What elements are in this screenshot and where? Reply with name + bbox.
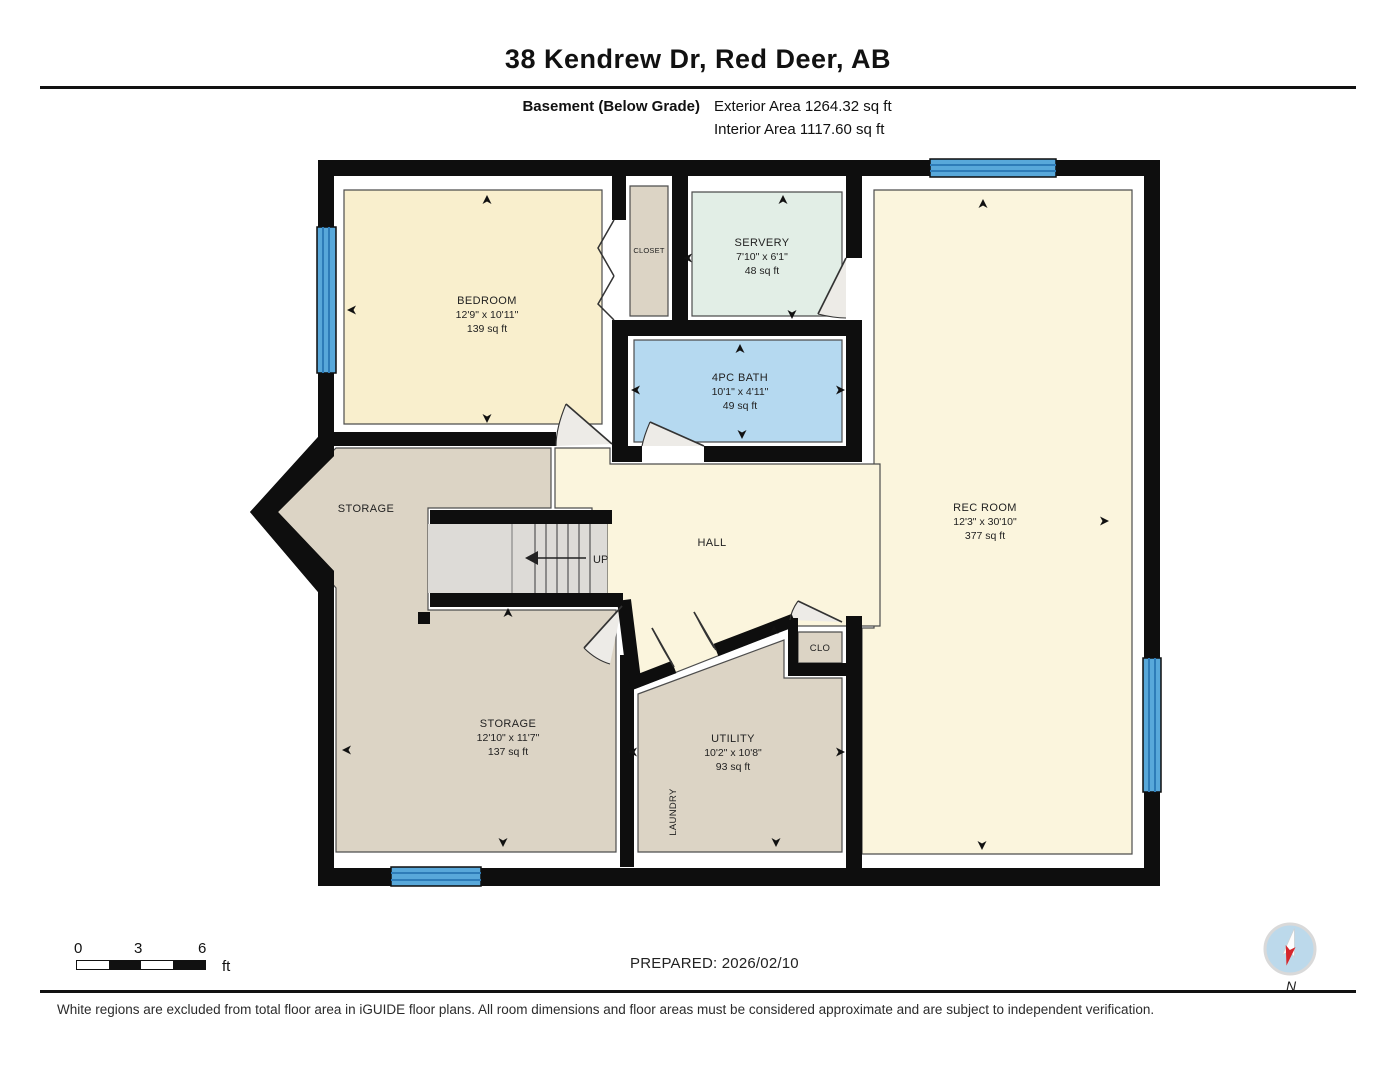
window-bottom [391, 867, 481, 886]
utility-dims: 10'2" x 10'8" [704, 747, 762, 759]
floor-plan-svg: BEDROOM 12'9" x 10'11" 139 sq ft CLOSET … [0, 0, 1396, 1080]
disclaimer-text: White regions are excluded from total fl… [57, 1002, 1154, 1017]
scale-0: 0 [74, 940, 82, 957]
servery-area: 48 sq ft [745, 265, 780, 277]
bath-dims: 10'1" x 4'11" [712, 386, 769, 398]
scale-6: 6 [198, 940, 206, 957]
footer-rule [40, 990, 1356, 993]
scale-bar: 0 3 6 ft [76, 940, 296, 970]
compass [1265, 924, 1315, 974]
window-top [930, 159, 1056, 177]
storage-lower-area: 137 sq ft [488, 746, 528, 758]
storage-lower-dims: 12'10" x 11'7" [477, 732, 540, 744]
scale-numbers: 0 3 6 [76, 940, 296, 958]
prepared-date: PREPARED: 2026/02/10 [630, 955, 799, 972]
scale-3: 3 [134, 940, 142, 957]
closet-label: CLOSET [633, 246, 664, 255]
scale-track [76, 960, 206, 970]
utility-label: UTILITY [711, 733, 755, 745]
laundry-label: LAUNDRY [668, 788, 679, 836]
bath-area: 49 sq ft [723, 400, 758, 412]
window-right [1143, 658, 1161, 792]
clo-label: CLO [810, 643, 830, 654]
hall-label: HALL [697, 537, 726, 549]
wall-left-b [318, 371, 334, 437]
utility-area: 93 sq ft [716, 761, 751, 773]
wall-left-c [318, 584, 334, 886]
scale-unit: ft [222, 958, 230, 975]
bedroom-dims: 12'9" x 10'11" [456, 309, 519, 321]
stairs [428, 524, 607, 593]
bath-label: 4PC BATH [712, 372, 768, 384]
bedroom-room [344, 190, 602, 424]
wall-left-a [318, 160, 334, 230]
window-left [317, 227, 336, 373]
bedroom-label: BEDROOM [457, 295, 517, 307]
storage-upper-label: STORAGE [338, 503, 394, 515]
stairs-up-label: UP [593, 554, 608, 566]
rec-room-area: 377 sq ft [965, 530, 1005, 542]
storage-lower-label: STORAGE [480, 718, 536, 730]
servery-dims: 7'10" x 6'1" [736, 251, 788, 263]
rec-room-dims: 12'3" x 30'10" [953, 516, 1017, 528]
rec-room-label: REC ROOM [953, 502, 1017, 514]
floorplan-page: 38 Kendrew Dr, Red Deer, AB Basement (Be… [0, 0, 1396, 1080]
bedroom-area: 139 sq ft [467, 323, 507, 335]
servery-label: SERVERY [735, 237, 790, 249]
